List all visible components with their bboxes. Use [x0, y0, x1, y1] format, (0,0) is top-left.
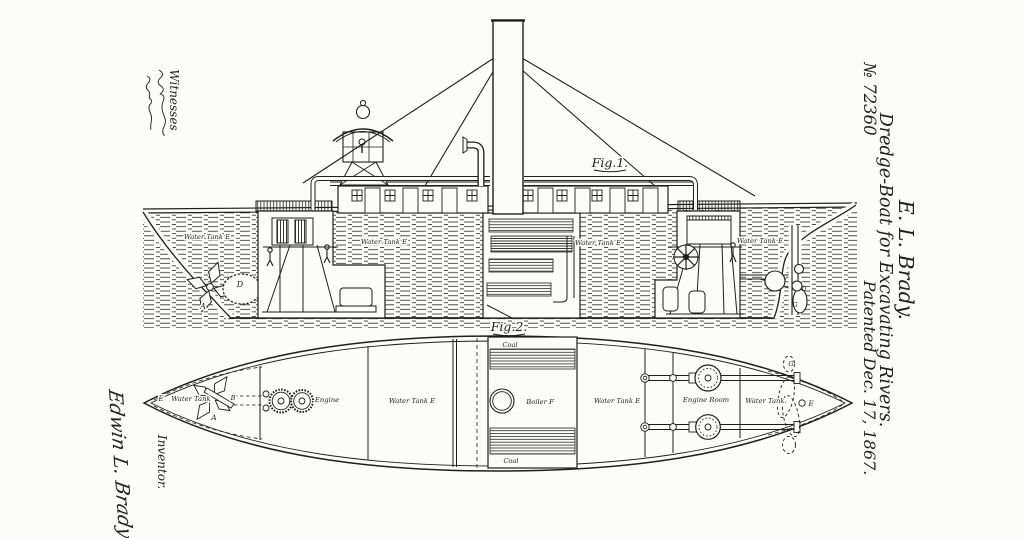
- fig1-side-elevation: Fig.1. Water Tank E Water Tank E Water T…: [143, 20, 857, 328]
- right-margin-text: E. L. Brady. Dredge-Boat for Excavating …: [860, 61, 918, 475]
- fig2-water-tank-stern: Water Tank.: [745, 397, 786, 405]
- witness-signature-2: [146, 76, 153, 130]
- witnesses-label: Witnesses: [167, 69, 181, 130]
- fig1-stern-letter-d: D: [801, 286, 807, 293]
- dredge-drum: [223, 274, 261, 304]
- fig2-letter-a: A: [210, 413, 217, 422]
- fig2-letter-b: B: [230, 394, 236, 402]
- fig1-water-tank-bow: Water Tank E: [184, 233, 230, 241]
- fig2-engine: Engine: [314, 396, 339, 404]
- inventor-signature: Edwin L. Brady: [104, 387, 137, 538]
- patent-date: Patented Dec. 17, 1867.: [860, 280, 879, 476]
- pilot-house: [333, 100, 393, 185]
- inventor-label: Inventor.: [155, 434, 169, 489]
- fig2-coal-fore: Coal: [502, 341, 517, 349]
- aft-railing: [678, 201, 740, 211]
- fig2-water-tank-bow: Water Tank: [171, 395, 210, 403]
- patent-sheet: Fig.1. Water Tank E Water Tank E Water T…: [0, 0, 1024, 538]
- fig1-caption: Fig.1.: [591, 155, 629, 170]
- fig2-boiler: Boiler F: [525, 398, 554, 406]
- fig2-letter-g: G: [788, 360, 793, 368]
- patentee-name: E. L. Brady.: [894, 199, 918, 320]
- fig1-water-tank-stern: Water Tank E: [737, 237, 783, 245]
- fig2-stern-e: E: [807, 400, 813, 408]
- fig2-bow-e: E: [157, 395, 163, 403]
- fig1-water-tank-mid: Water Tank E: [361, 238, 407, 246]
- fig2-caption: Fig.2.: [490, 319, 528, 334]
- fig2-plan-view: Fig.2. Coal Coal E Water Tank B A Engine…: [144, 319, 852, 471]
- fig1-letter-d: D: [236, 280, 244, 289]
- patent-drawing: Fig.1. Water Tank E Water Tank E Water T…: [0, 0, 1024, 538]
- fig1-water-tank-aft: Water Tank E: [575, 239, 621, 247]
- fore-railing: [256, 201, 332, 211]
- fig2-engine-room: Engine Room: [682, 396, 729, 404]
- plan-stern-e-marker: [799, 400, 805, 406]
- boiler-room: [483, 213, 580, 318]
- witness-signature-1: [158, 70, 167, 136]
- fig1-letter-a: A: [199, 302, 206, 311]
- patent-number: № 72360: [860, 61, 879, 135]
- fig2-coal-aft: Coal: [503, 457, 518, 465]
- fig1-stern-letter-g: G: [792, 301, 797, 309]
- fig2-water-tank-stbd: Water Tank E: [594, 397, 640, 405]
- fig2-water-tank-port: Water Tank E: [389, 397, 435, 405]
